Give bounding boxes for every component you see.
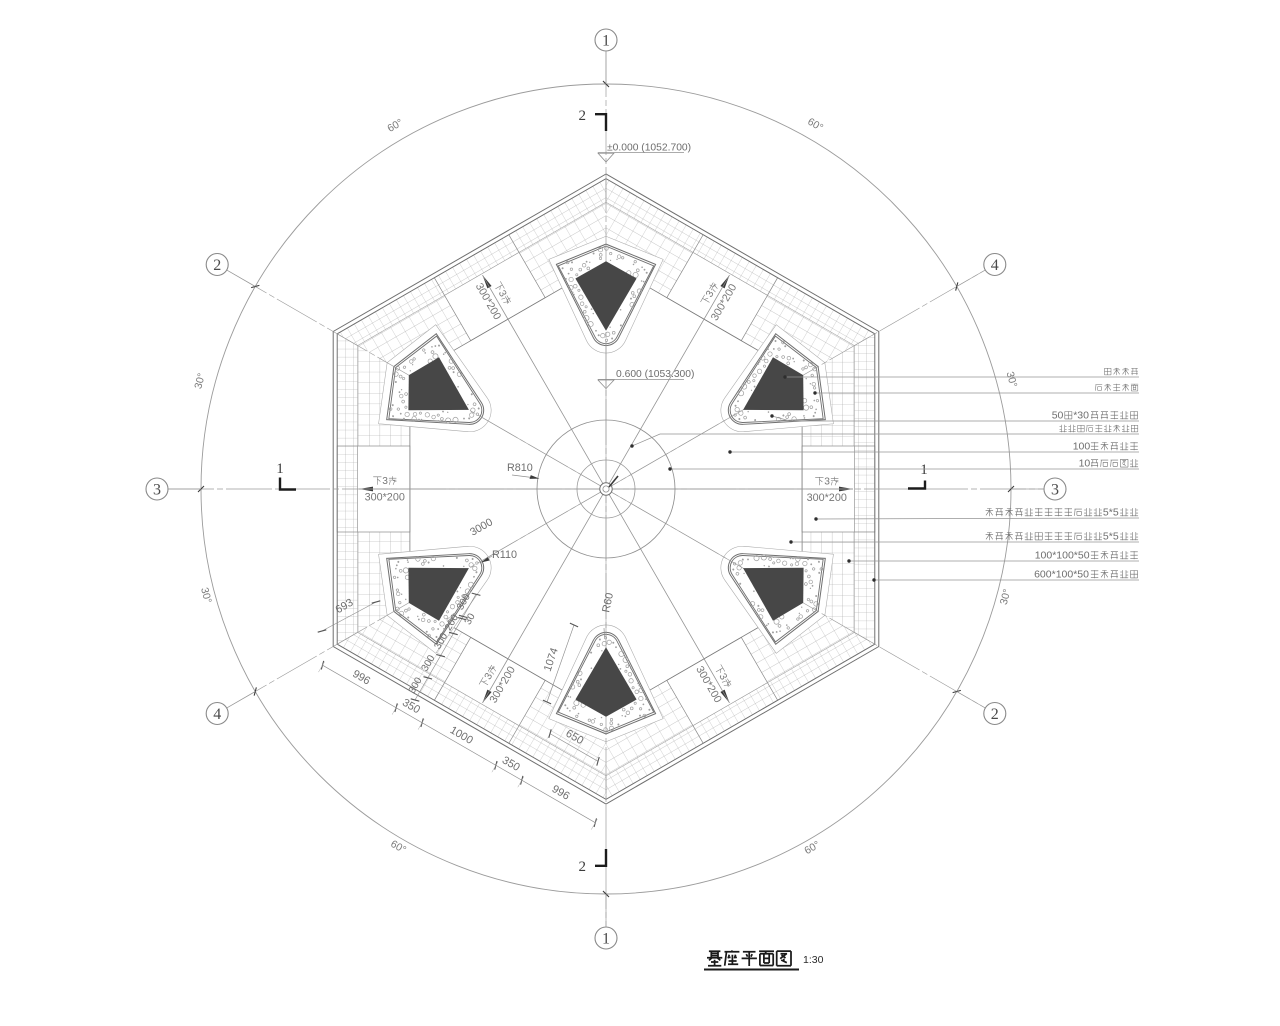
svg-text:50: 50 — [1052, 410, 1064, 422]
svg-text:300*200: 300*200 — [365, 492, 405, 504]
svg-text:300*200: 300*200 — [807, 492, 847, 504]
svg-text:4: 4 — [991, 257, 999, 274]
svg-text:0.600 (1053.300): 0.600 (1053.300) — [616, 369, 694, 380]
svg-text:3: 3 — [153, 482, 161, 499]
svg-text:4: 4 — [213, 706, 221, 723]
svg-text:*30: *30 — [1073, 410, 1089, 422]
svg-text:R110: R110 — [492, 549, 517, 561]
svg-text:3: 3 — [824, 477, 830, 488]
svg-text:2: 2 — [213, 257, 221, 274]
svg-text:1: 1 — [276, 461, 284, 477]
svg-text:600*100*50: 600*100*50 — [1034, 569, 1089, 581]
svg-text:3: 3 — [1051, 482, 1059, 499]
svg-text:1:30: 1:30 — [803, 954, 824, 966]
svg-text:1: 1 — [602, 33, 610, 50]
svg-text:±0.000 (1052.700): ±0.000 (1052.700) — [607, 143, 691, 154]
svg-text:2: 2 — [579, 108, 587, 124]
svg-text:1: 1 — [602, 931, 610, 948]
svg-text:3: 3 — [382, 476, 388, 487]
svg-text:100: 100 — [1073, 441, 1091, 453]
svg-text:100*100*50: 100*100*50 — [1035, 550, 1090, 562]
svg-text:5*5: 5*5 — [1103, 507, 1119, 519]
svg-text:2: 2 — [579, 859, 587, 875]
svg-text:10: 10 — [1079, 458, 1091, 470]
svg-text:R810: R810 — [507, 462, 533, 474]
svg-text:5*5: 5*5 — [1103, 531, 1119, 543]
svg-text:2: 2 — [991, 706, 999, 723]
svg-text:1: 1 — [920, 462, 928, 478]
